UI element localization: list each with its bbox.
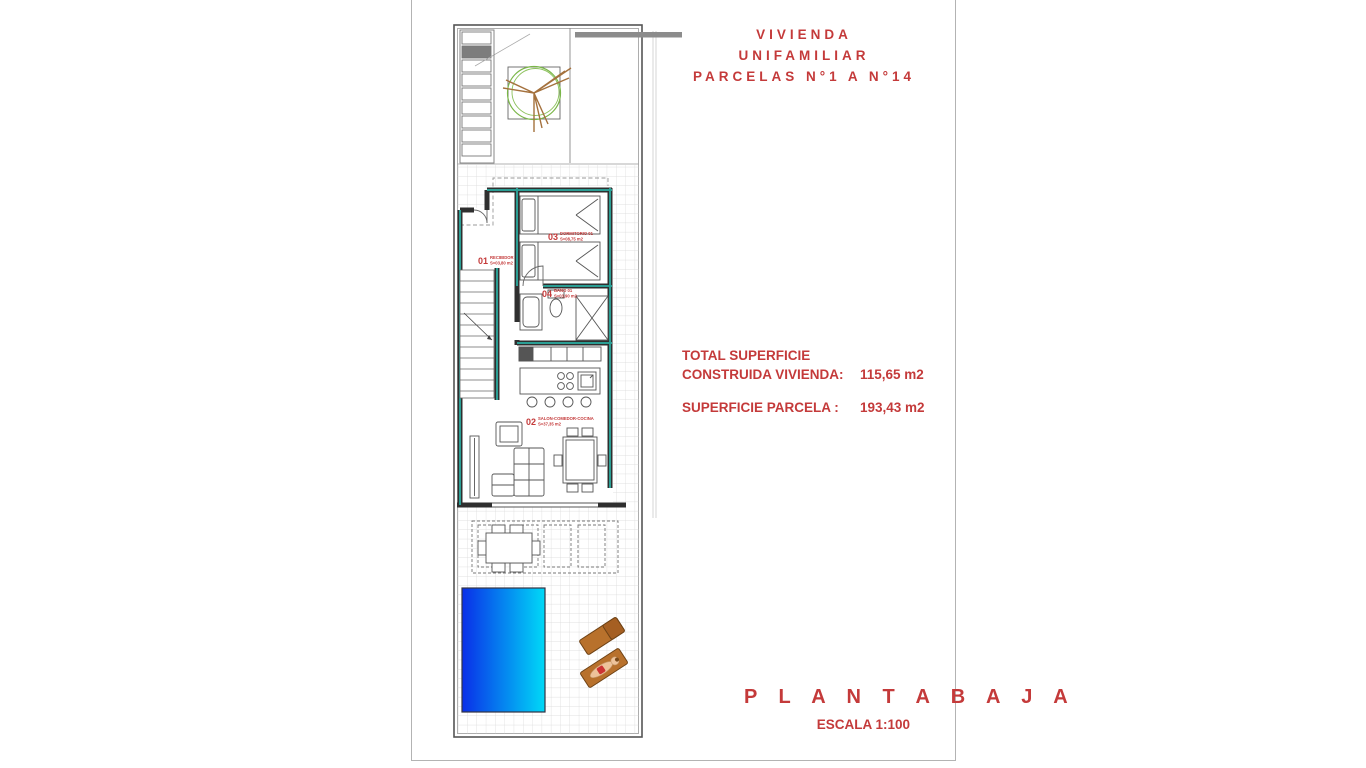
floor-plan-drawing: 01 RECIBIDOR S=03,80 m2 02 SALON-COMEDOR…	[430, 18, 690, 748]
total-surface-value: 115,65 m2	[860, 365, 924, 384]
page-right-edge	[955, 0, 956, 760]
bed-icon	[520, 242, 600, 280]
plan-sheet: VIVIENDA UNIFAMILIAR PARCELAS N°1 A N°14…	[0, 0, 1366, 768]
shower-icon	[576, 296, 608, 340]
tv-unit-icon	[470, 436, 479, 498]
total-surface-label-2: CONSTRUIDA VIVIENDA:	[682, 365, 860, 384]
armchair-icon	[496, 422, 522, 446]
shower-tray-icon	[520, 294, 542, 330]
page-left-edge	[411, 0, 412, 760]
title-line-1: VIVIENDA UNIFAMILIAR	[688, 24, 920, 66]
total-surface-row2: CONSTRUIDA VIVIENDA: 115,65 m2	[682, 365, 932, 384]
total-surface-row1: TOTAL SUPERFICIE	[682, 346, 932, 365]
boundary-wall-bar	[575, 32, 682, 38]
svg-text:S=08,75 m2: S=08,75 m2	[560, 237, 584, 242]
parcel-surface-value: 193,43 m2	[860, 398, 925, 417]
svg-text:S=37,35 m2: S=37,35 m2	[538, 422, 562, 427]
svg-text:02: 02	[526, 417, 536, 427]
parcel-surface-label: SUPERFICIE PARCELA :	[682, 398, 860, 417]
sheet-title: VIVIENDA UNIFAMILIAR PARCELAS N°1 A N°14	[688, 24, 920, 87]
total-surface-label-1: TOTAL SUPERFICIE	[682, 346, 860, 365]
parcel-surface-row: SUPERFICIE PARCELA : 193,43 m2	[682, 398, 932, 417]
room-label-recibidor: 01 RECIBIDOR S=03,80 m2	[478, 255, 514, 266]
sink-icon	[578, 372, 596, 390]
sheet-footer: P L A N T A B A J A ESCALA 1:100	[744, 686, 910, 732]
plan-name: P L A N T A B A J A	[744, 686, 910, 709]
svg-text:BAÑO 01: BAÑO 01	[554, 288, 573, 293]
stairs-icon	[460, 270, 494, 398]
svg-text:RECIBIDOR: RECIBIDOR	[490, 255, 514, 260]
svg-text:DORMITORIO 01: DORMITORIO 01	[560, 231, 594, 236]
kitchen-island-icon	[520, 368, 600, 394]
title-line-2: PARCELAS N°1 A N°14	[688, 66, 920, 87]
surface-areas: TOTAL SUPERFICIE CONSTRUIDA VIVIENDA: 11…	[682, 346, 932, 417]
svg-text:03: 03	[548, 232, 558, 242]
plan-scale: ESCALA 1:100	[744, 717, 910, 732]
pool	[462, 588, 545, 712]
adjacent-parcel-line	[653, 31, 656, 518]
svg-text:01: 01	[478, 256, 488, 266]
svg-text:S=03,80 m2: S=03,80 m2	[490, 261, 514, 266]
bed-icon	[520, 196, 600, 234]
svg-text:SALON-COMEDOR-COCINA: SALON-COMEDOR-COCINA	[538, 416, 594, 421]
svg-text:04: 04	[542, 289, 552, 299]
page-bottom-edge	[411, 760, 956, 761]
svg-text:S=03,90 m2: S=03,90 m2	[554, 294, 578, 299]
